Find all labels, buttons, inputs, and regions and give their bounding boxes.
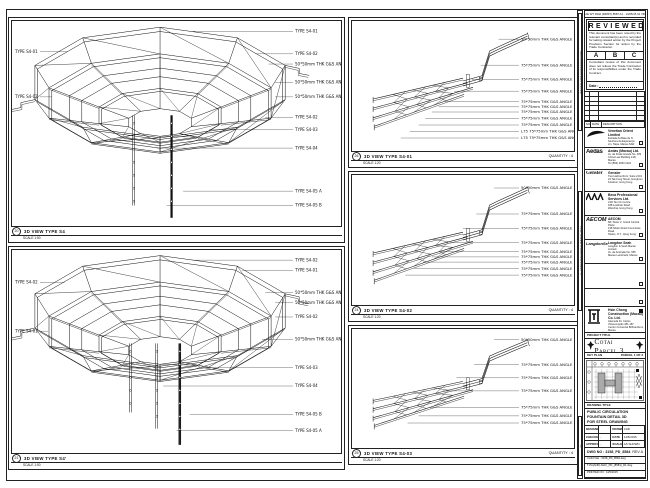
- member-label: TYPE S4-03: [294, 127, 318, 132]
- signoff-checkbox: [639, 185, 643, 189]
- member-label: 75*75mm THK G&S ANGLE: [521, 211, 573, 216]
- emblem-icon: [587, 340, 594, 351]
- signoff-table: DESIGNEDDRAWNCADCHECKED-DATE14/5/2015APP…: [585, 426, 645, 448]
- date-label: Date :: [589, 84, 598, 88]
- view-scale: SCALE 1:50: [11, 463, 342, 468]
- revision-cell: [590, 111, 600, 115]
- member-label: 75*75mm THK G&S ANGLE: [521, 116, 573, 121]
- member-label: TYPE S4-01: [294, 268, 318, 273]
- dome-wireframe-svg: TYPE S4-01TYPE S4-0250*50mm THK G&S ANGL…: [12, 21, 341, 226]
- viewport-3d-view-type-s4-03: 50*50mm THK G&S ANGLE75*75mm THK G&S ANG…: [348, 325, 578, 465]
- reviewed-stamp: REVIEWED This document has been noted by…: [585, 18, 645, 92]
- signoff-checkbox: [639, 300, 643, 304]
- viewport-3d-view-type-s4-02: 50*50mm THK G&S ANGLE75*75mm THK G&S ANG…: [348, 171, 578, 322]
- member-label: TYPE S4-02: [294, 257, 318, 262]
- key-plan-parcel-text: PARCEL 1 OF 3: [621, 353, 643, 358]
- dwg-number-row: DWG NO : 3158_PD_8584 REV A: [585, 448, 645, 457]
- dome-wireframe-svg: TYPE S4-02TYPE S4-0150*50mm THK G&S ANGL…: [12, 250, 341, 453]
- key-plan-svg: [586, 360, 644, 401]
- revision-cell: [590, 116, 600, 120]
- consultant-rows: Venetian Orient LimitedEstrada da Baía d…: [585, 128, 645, 307]
- member-label: 50*50mm THK G&S ANGLE: [295, 300, 341, 305]
- drawing-title: PUBLIC CIRCULATION FOUNTAIN DETAIL 3D FO…: [585, 409, 645, 426]
- beca-logo-icon: [586, 193, 604, 201]
- quantity-label: QUANTITY : 4: [549, 154, 575, 158]
- member-label: TYPE S4-04: [294, 145, 318, 150]
- member-label: 75*75mm THK G&S ANGLE: [521, 420, 573, 425]
- review-option-b: B: [606, 52, 625, 59]
- member-label: TYPE S4-04: [294, 383, 318, 388]
- viewport-3d-view-type-s4-prime: TYPE S4-02TYPE S4-0150*50mm THK G&S ANGL…: [8, 246, 345, 470]
- dwg-number-label: DWG NO :: [587, 450, 604, 454]
- member-label: TYPE S4-02: [294, 115, 318, 120]
- member-label: 75*75mm THK G&S ANGLE: [521, 240, 573, 245]
- venetian-logo-icon: [586, 129, 606, 138]
- consultant-address-line: Kowloon, Hong Kong: [608, 181, 644, 184]
- drawing-viewport: 50*50mm THK G&S ANGLE75*75mm THK G&S ANG…: [351, 174, 575, 306]
- revision-row: [585, 116, 645, 121]
- revision-cell: [637, 106, 645, 110]
- view-title-bar: 21 3D VIEW TYPE S4' SCALE 1:50: [11, 454, 342, 467]
- revision-cell: [599, 116, 636, 120]
- member-label: 75*75mm THK G&S ANGLE: [521, 122, 573, 127]
- member-label: 75*75mm THK G&S ANGLE: [521, 88, 573, 93]
- date-blank: [599, 83, 637, 88]
- title-block: AE WT 9342 (R4897) 8587 A1 · 14/05/15 01…: [584, 10, 646, 479]
- view-title: 3D VIEW TYPE S4-03: [364, 451, 412, 456]
- revision-cell: [590, 106, 600, 110]
- project-label-text: PROJECT TITLE: [587, 333, 610, 338]
- member-label: 50*50mm THK G&S ANGLE: [295, 337, 341, 342]
- reviewed-paragraph-1: This document has been noted by the rele…: [587, 31, 643, 51]
- view-scale: SCALE 1:20: [351, 315, 575, 320]
- member-label: TYPE S4-01: [14, 49, 38, 54]
- signoff-value: AS SHOWN: [623, 441, 645, 448]
- reviewed-paragraph-2: Consultant review of this document does …: [587, 60, 643, 76]
- member-label: 75*75mm THK G&S ANGLE: [521, 413, 573, 418]
- quantity-label: QUANTITY : 4: [549, 451, 575, 455]
- signoff-checkbox: [639, 233, 643, 237]
- member-label: 75*75mm THK G&S ANGLE: [521, 62, 573, 67]
- project-title-row: Cotai Parcel 3: [585, 339, 645, 353]
- member-label: 75*75mm THK G&S ANGLE: [521, 388, 573, 393]
- consultant-row: GenslerGenslerTwo Harbourfront, Suite 21…: [585, 170, 645, 192]
- key-plan: [585, 359, 645, 403]
- dwg-revision: REV A: [632, 450, 643, 454]
- drawing-viewport: TYPE S4-02TYPE S4-0150*50mm THK G&S ANGL…: [11, 249, 342, 454]
- member-label: TYPE S4-02: [14, 94, 38, 99]
- gensler-logo: Gensler: [586, 171, 603, 176]
- revision-cell: [637, 102, 645, 106]
- dwg-number: 3158_PD_8584: [605, 450, 630, 454]
- consultant-logo: LangdonSeah: [586, 241, 608, 262]
- drawing-viewport: TYPE S4-01TYPE S4-0250*50mm THK G&S ANGL…: [11, 20, 342, 227]
- drawing-title-label-text: DRAWING TITLE: [587, 403, 611, 408]
- consultant-row: AECOMAECOM8/F Tower 2, Grand Central Pla…: [585, 216, 645, 240]
- revision-cell: [599, 106, 636, 110]
- viewport-3d-view-type-s4: TYPE S4-01TYPE S4-0250*50mm THK G&S ANGL…: [8, 17, 345, 243]
- zone-note: ISSUED FOR CONSTRUCTION: [578, 13, 582, 131]
- consultant-row: [585, 264, 645, 289]
- signoff-value: -: [599, 441, 611, 448]
- view-title: 3D VIEW TYPE S4-01: [364, 154, 412, 159]
- aedas-logo: Aedas: [586, 149, 603, 155]
- contractor-address-line: Centro Comercial Brilhantismo, Macau: [608, 326, 644, 331]
- key-plan-label-text: KEY PLAN: [587, 353, 602, 358]
- member-label: 75*75mm THK G&S ANGLE: [521, 109, 573, 114]
- cad-file-row: PRINTED ON : 14/5/2015: [585, 471, 645, 478]
- member-label: TYPE S4-03: [294, 365, 318, 370]
- revision-cell: [590, 92, 600, 96]
- revision-header-cell: DATE: [591, 122, 602, 127]
- signoff-value: [599, 426, 611, 433]
- reviewed-title: REVIEWED: [588, 21, 643, 31]
- review-option-c: C: [625, 52, 643, 59]
- signoff-checkbox: [639, 141, 643, 145]
- member-label: 75*75mm THK G&S ANGLE: [521, 259, 573, 264]
- consultant-name: Venetian Orient Limited: [608, 129, 644, 137]
- consultant-logo: [586, 193, 608, 214]
- revision-cell: [637, 111, 645, 115]
- member-label: 50*50mm THK G&S ANGLE: [521, 185, 573, 190]
- consultant-logo: Gensler: [586, 171, 608, 190]
- view-scale: SCALE 1:50: [11, 236, 342, 241]
- signoff-row: DESIGNEDDRAWNCAD: [585, 426, 645, 434]
- member-label: TYPE S4-05 B: [294, 412, 322, 417]
- member-label: 75*75mm THK G&S ANGLE: [521, 226, 573, 231]
- cad-file-rows: CAD FILE : 3158_PD_8584.dwgT-PA(AND)-MAC…: [585, 457, 645, 478]
- detail-number-bubble: 24: [352, 306, 361, 315]
- consultant-row: LangdonSeahLangdon SeahLangdon & Seah Ma…: [585, 240, 645, 264]
- contractor-logo: [586, 308, 608, 331]
- quantity-label: QUANTITY : 4: [549, 308, 575, 312]
- member-label: 50*50mm THK G&S ANGLE: [521, 337, 573, 342]
- consultant-logo: [586, 265, 608, 287]
- detail-number-bubble: 25: [352, 449, 361, 458]
- signoff-label: SCALE: [611, 441, 622, 448]
- member-label: TYPE S4-05 A: [294, 188, 322, 193]
- cad-file-row: T-PA(AND)-MAC_PD_(8584)_R1.dwg: [585, 464, 645, 471]
- member-label: 50*50mm THK G&S ANGLE: [295, 80, 341, 85]
- consultant-logo: [586, 129, 608, 146]
- consultant-logo: Aedas: [586, 149, 608, 168]
- detail-number-bubble: 21: [12, 454, 21, 463]
- reviewed-date-line: Date :: [587, 81, 643, 89]
- contractor-row: Hsin Chong Construction (Macau) Co. Ltd.…: [585, 307, 645, 333]
- zone-note: © VENETIAN COTAI LIMITED 2014: [578, 191, 582, 311]
- revision-cell: [599, 97, 636, 101]
- signoff-row: CHECKED-DATE14/5/2015: [585, 434, 645, 442]
- drawing-sheet: TYPE S4-01TYPE S4-0250*50mm THK G&S ANGL…: [0, 0, 650, 488]
- view-title: 3D VIEW TYPE S4': [24, 456, 66, 461]
- sheet-zone-strip: ISSUED FOR CONSTRUCTION© VENETIAN COTAI …: [577, 10, 583, 479]
- member-label: TYPE S4-02: [294, 314, 318, 319]
- member-label: TYPE S4-01: [14, 328, 38, 333]
- detail-number-bubble: 26: [352, 152, 361, 161]
- member-label: 75*75mm THK G&S ANGLE: [521, 266, 573, 271]
- signoff-label: APPROVED: [585, 441, 599, 448]
- view-title-bar: 20 3D VIEW TYPE S4 SCALE 1:50: [11, 227, 342, 240]
- view-title: 3D VIEW TYPE S4-02: [364, 308, 412, 313]
- revision-cell: [599, 102, 636, 106]
- revision-cell: [637, 92, 645, 96]
- consultant-logo: AECOM: [586, 217, 608, 238]
- revision-cell: [599, 92, 636, 96]
- member-label: 75*75mm THK G&S ANGLE: [521, 375, 573, 380]
- signoff-value: -: [599, 434, 611, 441]
- signoff-value: 14/5/2015: [623, 434, 645, 441]
- revision-cell: [637, 97, 645, 101]
- signoff-label: DATE: [611, 434, 622, 441]
- zone-note: A1: [578, 416, 582, 476]
- revision-header-cell: DESCRIPTION: [602, 122, 645, 127]
- revision-cell: [590, 97, 600, 101]
- view-title: 3D VIEW TYPE S4: [24, 229, 65, 234]
- member-label: TYPE S4-05 A: [294, 428, 322, 433]
- view-title-bar: 26 3D VIEW TYPE S4-01 QUANTITY : 4 SCALE…: [351, 152, 575, 165]
- signoff-checkbox: [639, 257, 643, 261]
- member-label: 50*50mm THK G&S ANGLE: [295, 61, 341, 66]
- signoff-checkbox: [639, 209, 643, 213]
- consultant-row: AedasAedas (Macau) Ltd.Av. da Praia Gran…: [585, 148, 645, 170]
- member-label: L75 75*75mm THK G&S ANGLE: [521, 129, 574, 134]
- rib-wireframe-svg: 50*50mm THK G&S ANGLE75*75mm THK G&S ANG…: [352, 21, 574, 151]
- signoff-checkbox: [639, 282, 643, 286]
- view-scale: SCALE 1:20: [351, 458, 575, 463]
- cad-file-row: CAD FILE : 3158_PD_8584.dwg: [585, 457, 645, 464]
- member-label: 50*50mm THK G&S ANGLE: [295, 290, 341, 295]
- consultant-name: Beca Professional Services Ltd.: [608, 193, 644, 201]
- view-scale: SCALE 1:20: [351, 161, 575, 166]
- viewport-3d-view-type-s4-01: 50*50mm THK G&S ANGLE75*75mm THK G&S ANG…: [348, 17, 578, 168]
- member-label: L75 75*75mm THK G&S ANGLE: [521, 135, 574, 140]
- aecom-logo: AECOM: [586, 217, 606, 223]
- signoff-value: CAD: [623, 426, 645, 433]
- drawing-viewport: 50*50mm THK G&S ANGLE75*75mm THK G&S ANG…: [351, 20, 575, 152]
- hsin-chong-logo-icon: [586, 308, 602, 326]
- document-code: AE WT 9342 (R4897) 8587 A1 · 14/05/15 01…: [585, 11, 645, 18]
- member-label: 75*75mm THK G&S ANGLE: [521, 77, 573, 82]
- rib-wireframe-svg: 50*50mm THK G&S ANGLE75*75mm THK G&S ANG…: [352, 329, 574, 448]
- status-square: [639, 309, 643, 313]
- member-label: 50*50mm THK G&S ANGLE: [521, 36, 573, 41]
- view-title-bar: 25 3D VIEW TYPE S4-03 QUANTITY : 4 SCALE…: [351, 449, 575, 462]
- langdon-logo: LangdonSeah: [586, 241, 608, 246]
- consultant-logo: [586, 290, 608, 305]
- signoff-checkbox: [639, 163, 643, 167]
- review-option-a: A: [587, 52, 606, 59]
- consultant-row: [585, 289, 645, 307]
- rib-wireframe-svg: 50*50mm THK G&S ANGLE75*75mm THK G&S ANG…: [352, 175, 574, 305]
- signoff-label: DRAWN: [611, 426, 622, 433]
- project-title: Cotai Parcel 3: [594, 339, 635, 353]
- drawing-title-line: FOR STEEL DRAWING: [587, 420, 643, 425]
- revision-cell: [599, 111, 636, 115]
- member-label: 75*75mm THK G&S ANGLE: [521, 405, 573, 410]
- member-label: 50*50mm THK G&S ANGLE: [295, 94, 341, 99]
- revision-cell: [590, 102, 600, 106]
- member-label: 75*75mm THK G&S ANGLE: [521, 362, 573, 367]
- member-label: TYPE S4-02: [294, 51, 318, 56]
- review-option-row: A B C: [587, 51, 643, 60]
- signoff-row: APPROVED-SCALEAS SHOWN: [585, 441, 645, 448]
- detail-number-bubble: 20: [12, 227, 21, 236]
- signoff-label: DESIGNED: [585, 426, 599, 433]
- member-label: TYPE S4-02: [14, 280, 38, 285]
- consultant-row: Beca Professional Services Ltd.21/F Siu …: [585, 192, 645, 216]
- member-label: 75*75mm THK G&S ANGLE: [521, 272, 573, 277]
- emblem-icon: [636, 340, 643, 351]
- member-label: TYPE S4-05 B: [294, 203, 322, 208]
- signoff-label: CHECKED: [585, 434, 599, 441]
- consultant-row: Venetian Orient LimitedEstrada da Baía d…: [585, 128, 645, 148]
- revision-cell: [637, 116, 645, 120]
- drawing-viewport: 50*50mm THK G&S ANGLE75*75mm THK G&S ANG…: [351, 328, 575, 449]
- view-title-bar: 24 3D VIEW TYPE S4-02 QUANTITY : 4 SCALE…: [351, 306, 575, 319]
- member-label: TYPE S4-01: [294, 28, 318, 33]
- revision-table: [585, 92, 645, 122]
